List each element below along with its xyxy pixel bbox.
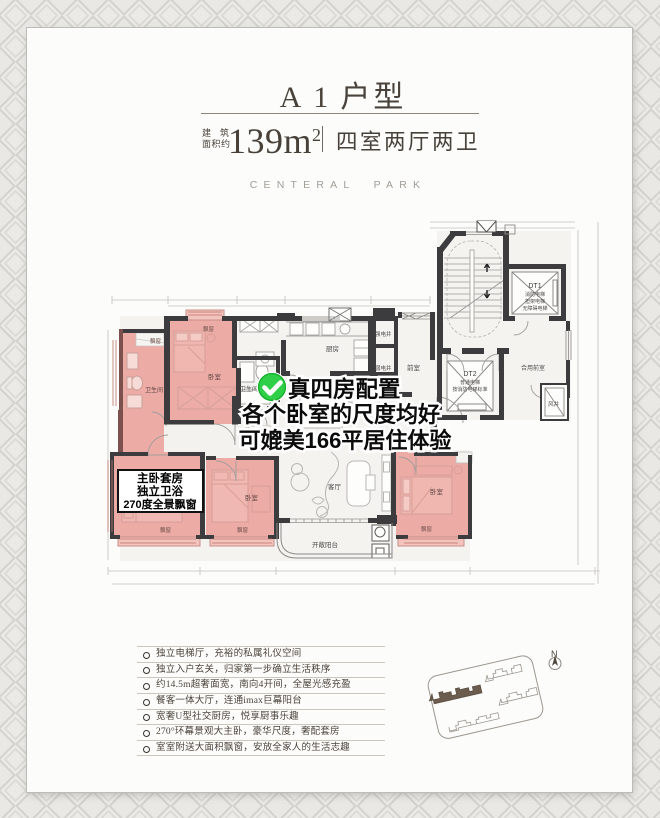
svg-text:270度全景飘窗: 270度全景飘窗 xyxy=(123,497,196,511)
svg-text:主卧套房: 主卧套房 xyxy=(137,471,183,485)
svg-text:真四房配置: 真四房配置 xyxy=(288,376,401,402)
svg-text:可媲美166平居住体验: 可媲美166平居住体验 xyxy=(239,428,452,453)
svg-text:各个卧室的尺度均好: 各个卧室的尺度均好 xyxy=(241,402,440,427)
svg-text:独立卫浴: 独立卫浴 xyxy=(137,484,183,498)
